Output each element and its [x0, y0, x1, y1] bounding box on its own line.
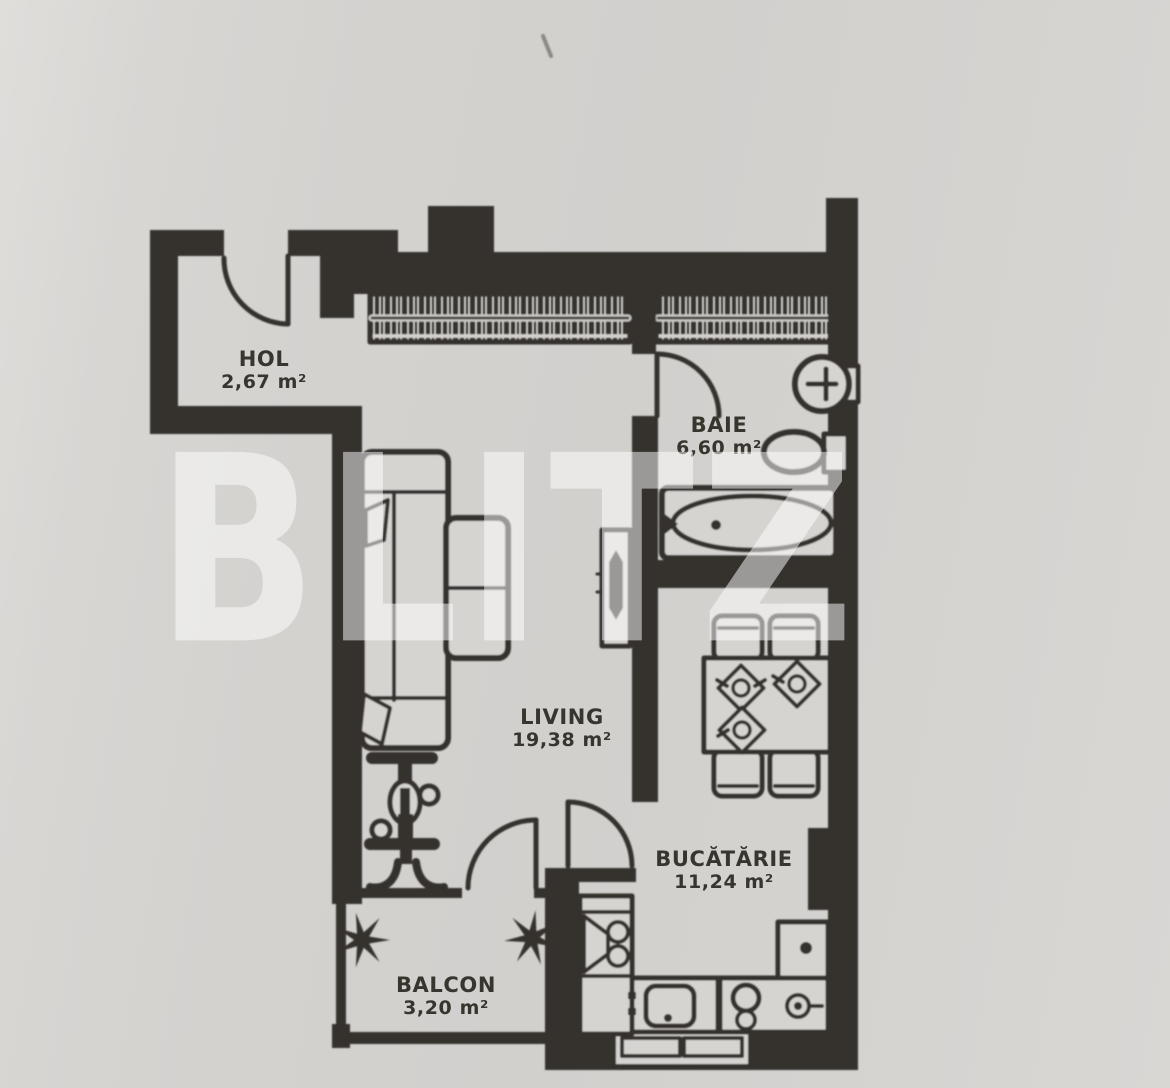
room-name: LIVING: [512, 706, 612, 730]
room-area: 11,24 m²: [655, 872, 792, 894]
sofa-icon: [360, 452, 508, 748]
dining-set: [704, 616, 830, 796]
floor-plan-scan: HOL 2,67 m² BAIE 6,60 m² LIVING 19,38 m²…: [0, 0, 1170, 1088]
room-area: 3,20 m²: [396, 998, 496, 1020]
floor-plan-drawing: [0, 0, 1170, 1088]
room-name: BAIE: [676, 414, 762, 438]
entry-door-icon: [224, 256, 288, 324]
kitchen-counter: [628, 978, 828, 1032]
room-label-living: LIVING 19,38 m²: [512, 706, 612, 752]
kitchen-door-icon: [568, 802, 632, 866]
room-name: HOL: [221, 348, 307, 372]
room-name: BALCON: [396, 974, 496, 998]
fridge-icon: [580, 896, 632, 1034]
sink-icon: [795, 357, 858, 411]
exercise-bike-icon: [364, 752, 444, 888]
scan-artifact: [543, 36, 551, 56]
toilet-icon: [764, 432, 848, 472]
washing-machine-icon: [778, 922, 828, 978]
room-area: 6,60 m²: [676, 438, 762, 460]
wardrobe-icon: [370, 294, 838, 342]
room-label-baie: BAIE 6,60 m²: [676, 414, 762, 460]
bathtub-icon: [662, 488, 836, 558]
stove-icon: [733, 985, 759, 1029]
room-area: 2,67 m²: [221, 372, 307, 394]
room-area: 19,38 m²: [512, 730, 612, 752]
dining-table-icon: [704, 658, 830, 752]
room-name: BUCĂTĂRIE: [655, 848, 792, 872]
window-icon: [616, 1032, 748, 1064]
room-label-balcon: BALCON 3,20 m²: [396, 974, 496, 1020]
tv-unit-icon: [597, 530, 630, 646]
plants: [337, 904, 568, 974]
room-label-bucatarie: BUCĂTĂRIE 11,24 m²: [655, 848, 792, 894]
balcony-door-icon: [468, 820, 536, 888]
bathroom-door-icon: [657, 354, 719, 416]
room-label-hol: HOL 2,67 m²: [221, 348, 307, 394]
